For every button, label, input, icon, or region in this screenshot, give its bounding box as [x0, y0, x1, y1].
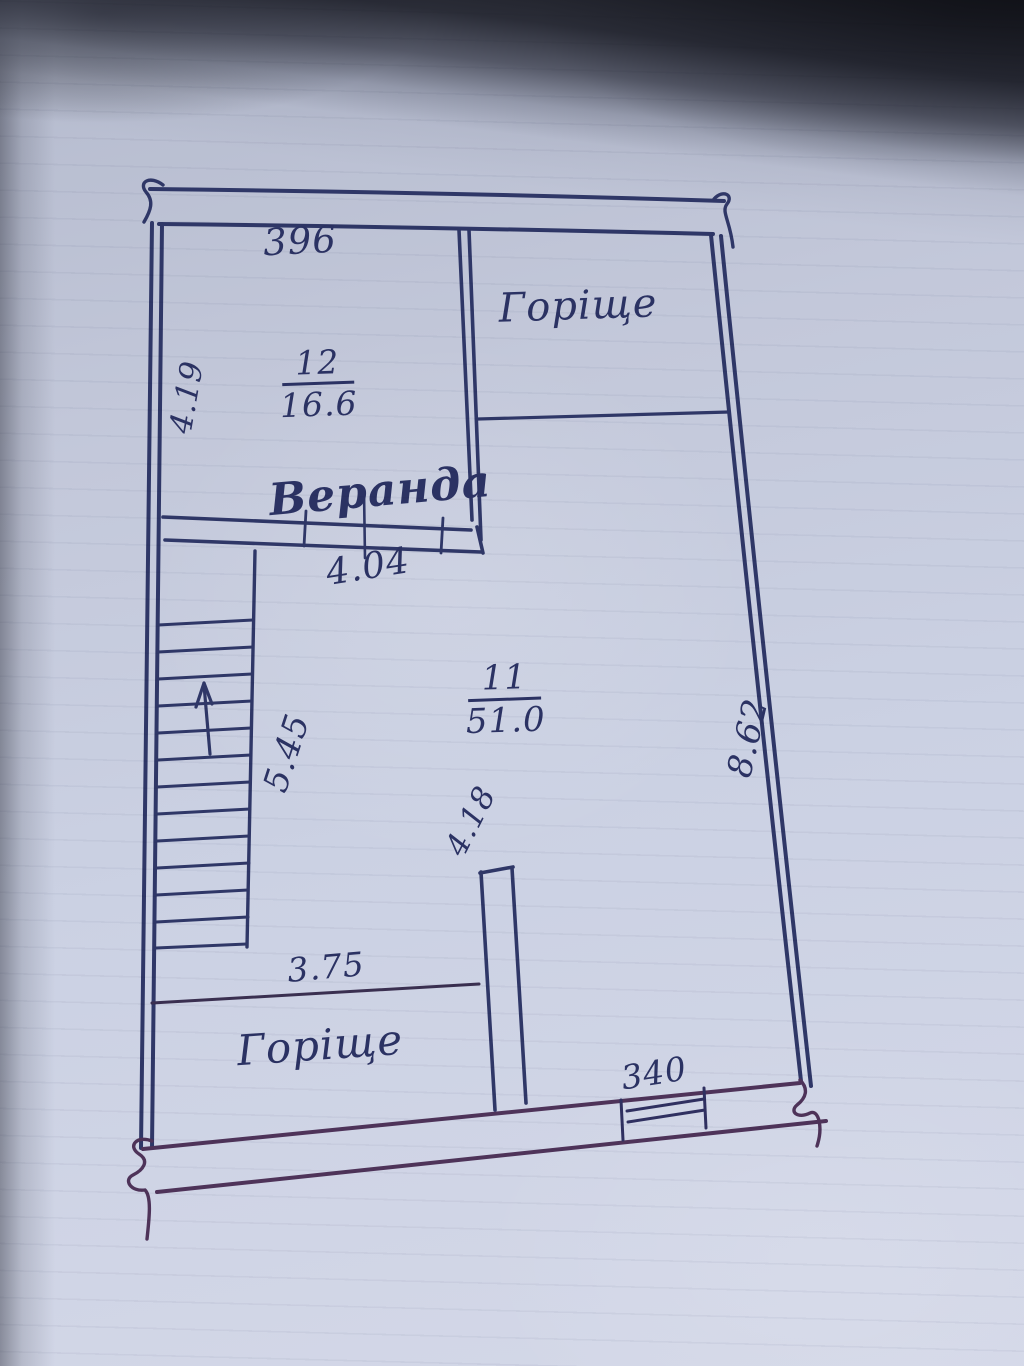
stairs — [156, 551, 255, 948]
window-panes — [627, 1099, 705, 1122]
stairs-treads — [156, 620, 253, 922]
veranda-wall-tick-2 — [441, 518, 443, 553]
top-left-corner-squiggle — [143, 180, 163, 222]
bottom-wall-lower — [157, 1121, 826, 1192]
dimension-top: 396 — [262, 218, 338, 265]
bottom-right-corner-squiggle — [794, 1080, 820, 1146]
window-tick-right — [704, 1088, 706, 1128]
room-area-veranda: 16.6 — [279, 383, 358, 423]
stairs-direction-arrow — [196, 683, 212, 754]
veranda-bottom-wall — [163, 517, 483, 553]
stairs-right-edge — [247, 551, 255, 947]
attic-label-top: Горіще — [498, 280, 658, 332]
bottom-wall-upper — [143, 1083, 800, 1149]
bottom-left-corner-squiggle — [129, 1139, 152, 1239]
bottom-wall — [129, 1080, 826, 1239]
room-label-veranda: 12 16.6 — [278, 345, 358, 424]
dimension-bottom-left: 3.75 — [286, 944, 367, 990]
lower-partition-lines — [480, 867, 526, 1110]
right-wall-outer — [711, 235, 801, 1081]
photographed-paper: 396 4.19 12 16.6 Горіще Веранда 4.04 11 … — [0, 0, 1024, 1366]
room-label-main: 11 51.0 — [464, 659, 546, 740]
top-wall-outer — [150, 189, 724, 201]
stairs-bottom-edge — [156, 944, 247, 948]
room-area-main: 51.0 — [465, 699, 546, 740]
top-wall-inner — [159, 224, 713, 234]
lower-partition-wall — [480, 867, 526, 1110]
window-tick-left — [621, 1100, 623, 1140]
left-wall-inner — [152, 224, 162, 1148]
room-number-main: 11 — [467, 660, 542, 702]
left-wall-outer — [141, 223, 152, 1148]
right-wall-inner — [721, 236, 811, 1086]
room-number-veranda: 12 — [281, 345, 354, 386]
attic-divider-line — [478, 412, 729, 419]
